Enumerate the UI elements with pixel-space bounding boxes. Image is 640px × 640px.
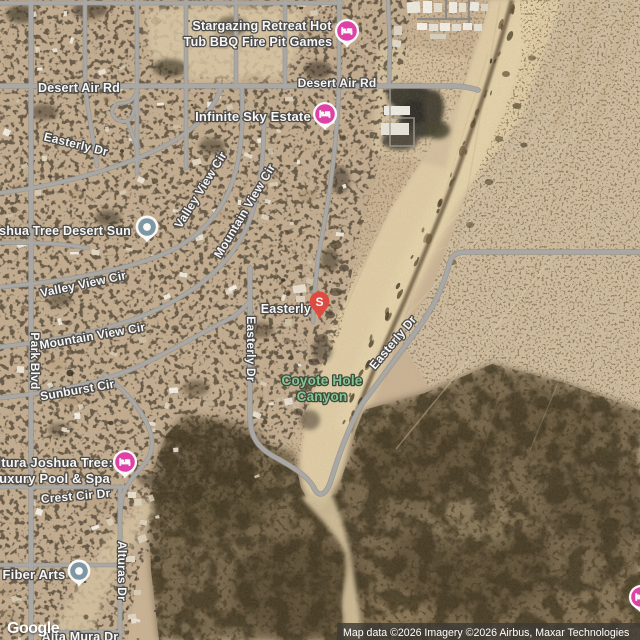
svg-text:Google: Google <box>7 620 60 637</box>
svg-text:Map data ©2026 Imagery ©2026 A: Map data ©2026 Imagery ©2026 Airbus, Max… <box>343 627 629 639</box>
